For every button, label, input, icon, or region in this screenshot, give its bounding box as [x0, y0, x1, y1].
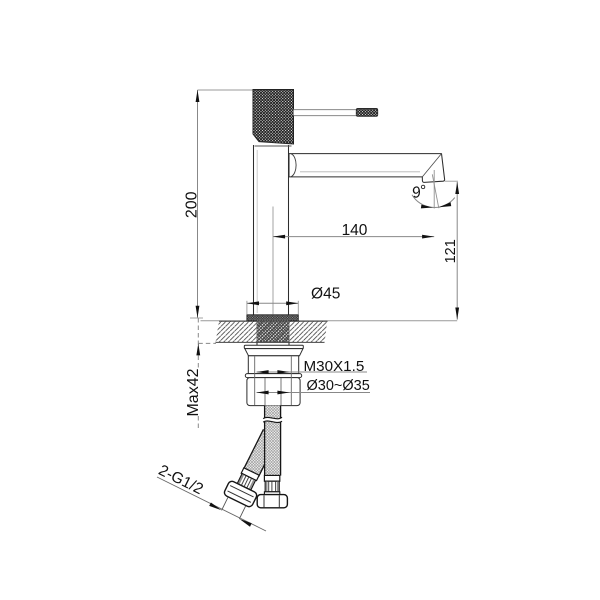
svg-text:121: 121 — [443, 239, 459, 263]
svg-text:Max42: Max42 — [185, 368, 202, 416]
svg-text:200: 200 — [184, 191, 201, 218]
svg-text:140: 140 — [342, 222, 368, 239]
svg-text:Ø30~Ø35: Ø30~Ø35 — [307, 378, 370, 394]
svg-text:M30X1.5: M30X1.5 — [304, 358, 365, 375]
svg-text:Ø45: Ø45 — [311, 286, 340, 303]
